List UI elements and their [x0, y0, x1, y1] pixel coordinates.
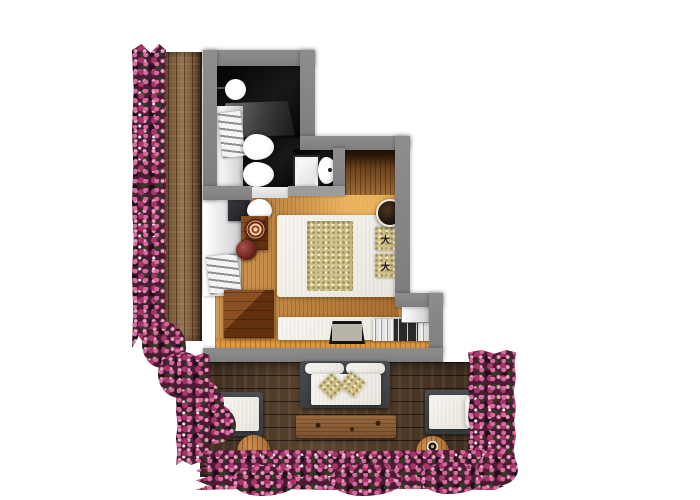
printed-pillow-2: 大 [375, 254, 396, 278]
serving-tray [329, 321, 365, 344]
dresser [224, 290, 274, 338]
sofa-back-cushion-left [305, 363, 344, 374]
bed-blanket [307, 221, 353, 291]
flower-cluster-bottom-1 [232, 466, 296, 496]
pillow-print-glyph: 大 [381, 233, 390, 246]
pillow-print-glyph: 大 [381, 260, 390, 273]
basin-drain [328, 168, 332, 172]
wall-band-mid [300, 136, 410, 150]
bathroom-door-opening [252, 187, 288, 198]
step-wall-vertical [429, 293, 443, 353]
flower-cluster-bottom-2 [330, 464, 402, 496]
round-basin [225, 79, 246, 100]
flower-cluster-bottom-4 [478, 450, 518, 486]
bathroom-sill [288, 186, 345, 196]
wardrobe-niche [345, 148, 395, 195]
printed-pillow-1: 大 [375, 227, 396, 251]
armchair-right-seat [429, 395, 469, 429]
closet-louver-panel [206, 253, 241, 294]
bathroom-right-wall-upper [300, 50, 315, 140]
decor-medallion [245, 219, 266, 240]
stool [236, 240, 257, 260]
bathroom-left-wall [203, 50, 217, 200]
bathroom-top-wall [203, 50, 315, 66]
balcony-left-deck [160, 52, 202, 341]
floor-plan-render: 大 大 [0, 0, 700, 500]
flower-border-left [132, 44, 166, 348]
flower-cluster-bottom-3 [420, 462, 482, 494]
bathroom-bottom-wall [203, 186, 252, 200]
bedroom-right-wall [395, 136, 410, 294]
flower-border-terrace-left [176, 353, 210, 465]
coffee-table [296, 415, 396, 438]
